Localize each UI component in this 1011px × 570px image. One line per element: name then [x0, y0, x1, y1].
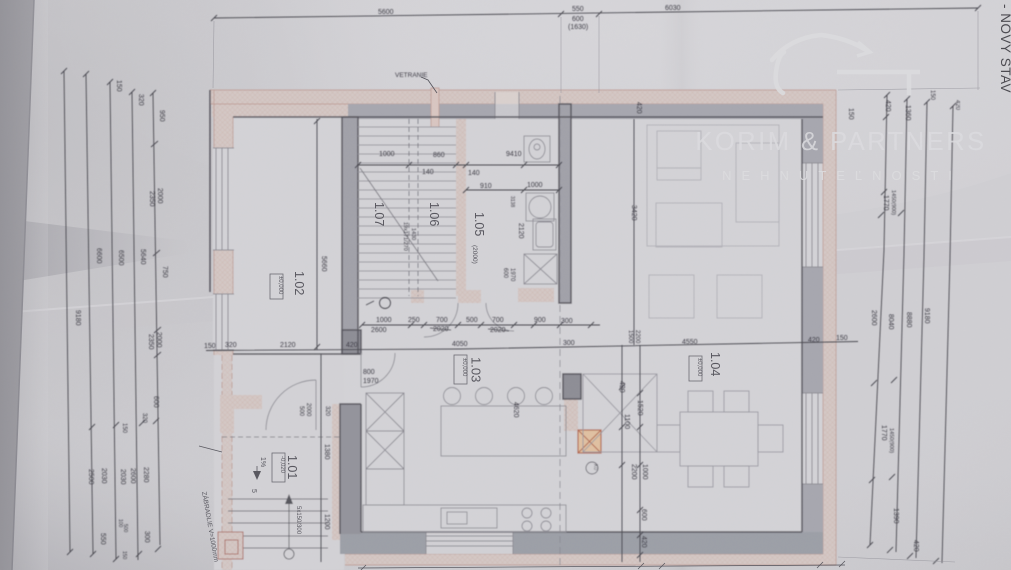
svg-text:- NOVÝ STAV: - NOVÝ STAV — [998, 4, 1011, 93]
svg-text:NEHNUTEĽNOSTI: NEHNUTEĽNOSTI — [722, 168, 962, 183]
svg-text:KORIM & PARTNERS: KORIM & PARTNERS — [695, 128, 986, 156]
